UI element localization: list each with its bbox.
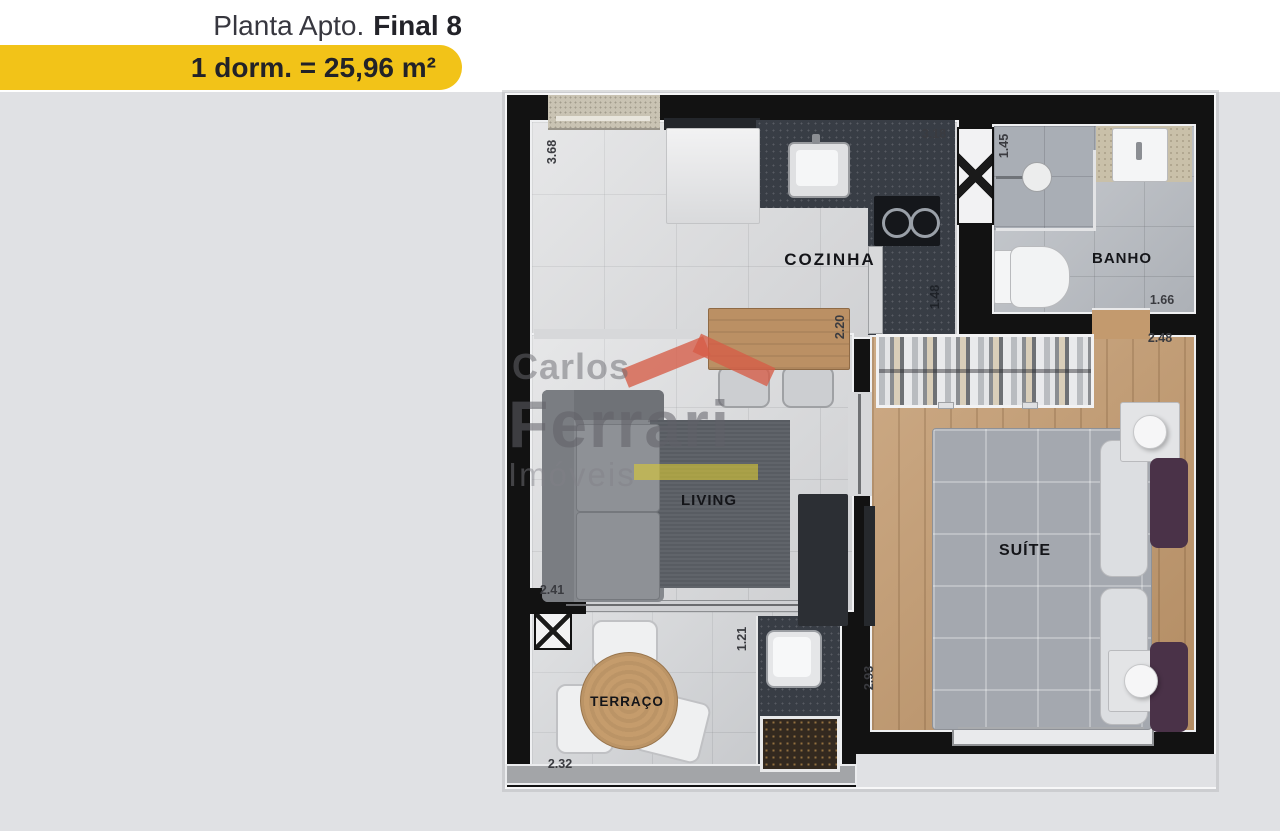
shaft-symbol bbox=[534, 612, 572, 650]
vanity-faucet bbox=[1136, 142, 1142, 160]
entry-door bbox=[548, 95, 660, 130]
wardrobe-handle bbox=[1022, 402, 1038, 409]
room-label-terrace: TERRAÇO bbox=[572, 694, 682, 709]
wardrobe-handle bbox=[938, 402, 954, 409]
dimension-label: 2.32 bbox=[538, 756, 582, 772]
tv-panel bbox=[864, 506, 875, 626]
dimension-label: 1.21 bbox=[734, 619, 750, 659]
wardrobe bbox=[876, 334, 1094, 408]
room-label-kitchen: COZINHA bbox=[730, 250, 930, 270]
dimension-label: 1.66 bbox=[1142, 292, 1182, 308]
dimension-label: 2.41 bbox=[530, 582, 574, 598]
sofa-cushion bbox=[576, 512, 660, 600]
area-badge-text: 1 dorm. = 25,96 m² bbox=[191, 45, 436, 90]
suite-window-frame bbox=[958, 727, 1144, 729]
entry-door-leaf bbox=[556, 116, 650, 121]
plan-title: Planta Apto.Final 8 bbox=[0, 10, 462, 42]
terrace-sliding-door-track bbox=[566, 604, 836, 606]
slab-cutout bbox=[856, 754, 1216, 787]
bar-stool bbox=[782, 366, 834, 408]
dimension-label: 1.45 bbox=[996, 126, 1012, 166]
suite-door-leaf bbox=[858, 394, 861, 494]
burner-icon bbox=[910, 208, 940, 238]
plan-title-regular: Planta Apto. bbox=[213, 10, 364, 41]
grill bbox=[760, 716, 840, 772]
dimension-label: 3.68 bbox=[544, 132, 560, 172]
kitchen-faucet bbox=[812, 134, 820, 144]
shower-head-icon bbox=[1022, 162, 1052, 192]
tv-sideboard bbox=[798, 494, 848, 626]
dimension-label: 2.20 bbox=[832, 307, 848, 347]
dimension-label: 2.93 bbox=[861, 658, 877, 698]
shower-glass bbox=[996, 228, 1096, 231]
dimension-label: 3.18 bbox=[914, 126, 954, 142]
breakfast-table bbox=[708, 308, 850, 370]
bar-stool bbox=[718, 366, 770, 408]
lamp-icon bbox=[1124, 664, 1158, 698]
cushion bbox=[1150, 458, 1188, 548]
dimension-label: 2.48 bbox=[1140, 330, 1180, 346]
burner-icon bbox=[882, 208, 912, 238]
header: Planta Apto.Final 8 1 dorm. = 25,96 m² bbox=[0, 0, 1280, 92]
plan-title-bold: Final 8 bbox=[373, 10, 462, 41]
page: Planta Apto.Final 8 1 dorm. = 25,96 m² bbox=[0, 0, 1280, 831]
terrace-sink-basin bbox=[773, 637, 811, 677]
toilet bbox=[1010, 246, 1070, 308]
area-badge: 1 dorm. = 25,96 m² bbox=[0, 45, 462, 90]
shaft-symbol bbox=[957, 127, 994, 225]
shower-glass bbox=[1093, 150, 1096, 231]
fridge bbox=[666, 128, 760, 224]
room-label-bathroom: BANHO bbox=[1072, 250, 1172, 267]
room-label-living: LIVING bbox=[664, 492, 754, 509]
sofa-arm bbox=[542, 390, 574, 602]
lamp-icon bbox=[1133, 415, 1167, 449]
dimension-label: 1.48 bbox=[927, 277, 943, 317]
room-label-suite: SUÍTE bbox=[980, 542, 1070, 560]
kitchen-sink-basin bbox=[796, 150, 838, 186]
sofa-cushion bbox=[576, 424, 660, 512]
